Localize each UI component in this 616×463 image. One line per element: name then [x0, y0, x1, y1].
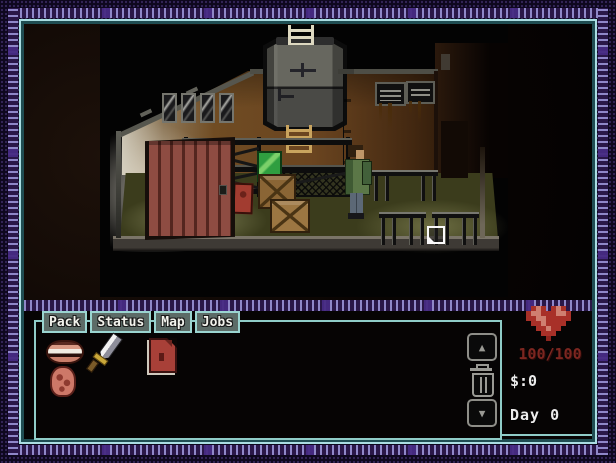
frame-band-left: [8, 8, 18, 455]
character-legs: [350, 193, 363, 214]
bench-top: [372, 170, 438, 176]
bench-leg: [420, 218, 424, 245]
arrow-up-icon: ▲: [479, 342, 486, 353]
bench-leg: [421, 176, 425, 201]
door-knob: [219, 185, 227, 195]
work-bench[interactable]: [372, 170, 438, 201]
character-shoes: [348, 213, 364, 219]
rust-drip: [388, 103, 392, 129]
trash-body: [472, 373, 494, 397]
bench-top: [379, 212, 426, 218]
scroll-up-button[interactable]: ▲: [467, 333, 497, 361]
book-fold: [165, 340, 172, 347]
bench-leg: [409, 218, 413, 245]
stats-panel-border: [500, 434, 592, 436]
tab-map[interactable]: Map: [154, 311, 191, 333]
cursor-fold: [427, 235, 436, 244]
health-value: 100/100: [508, 345, 592, 363]
wooden-crate[interactable]: [270, 199, 310, 233]
window-pane: [200, 93, 215, 123]
game-window: Pack Status Map Jobs ▲ ▼ 100/100 $:0 Day…: [0, 0, 616, 463]
day-counter: Day 0: [510, 406, 560, 424]
bench-leg: [445, 218, 449, 245]
rust-drip: [379, 103, 382, 121]
tab-pack[interactable]: Pack: [42, 311, 87, 333]
book-mark: [159, 353, 164, 361]
bench-leg: [374, 176, 378, 201]
character-backpack: [362, 161, 372, 185]
bench-leg: [392, 218, 396, 245]
bench-leg: [462, 218, 466, 245]
arrow-down-icon: ▼: [479, 408, 486, 419]
panel-tabs: Pack Status Map Jobs: [42, 311, 240, 333]
trash-button[interactable]: [469, 364, 493, 394]
right-wall-edge: [480, 147, 485, 238]
red-canister[interactable]: [232, 183, 253, 215]
frame-band-bottom: [8, 445, 608, 455]
bench-leg: [432, 176, 436, 201]
roof-ladder[interactable]: [288, 25, 314, 45]
bench-top: [432, 212, 479, 218]
panel-divider-band: [24, 300, 592, 311]
window-pane: [181, 93, 196, 123]
work-bench[interactable]: [379, 212, 426, 245]
scroll-down-button[interactable]: ▼: [467, 399, 497, 427]
plank-door[interactable]: [145, 137, 235, 240]
dark-doorway[interactable]: [441, 121, 468, 178]
tank-marking: [278, 89, 281, 101]
left-wall-edge: [116, 131, 121, 238]
inventory-item-dentures[interactable]: [46, 340, 84, 364]
rust-drip: [409, 101, 412, 115]
barred-window[interactable]: [162, 93, 234, 123]
tank-marking: [280, 95, 294, 98]
tab-jobs[interactable]: Jobs: [195, 311, 240, 333]
heart-icon: [526, 306, 531, 311]
window-pane: [219, 93, 234, 123]
survivor-character[interactable]: [343, 145, 370, 219]
bench-leg: [381, 218, 385, 245]
tank-marking: [301, 63, 304, 77]
bench-leg: [385, 176, 389, 201]
water-tank[interactable]: [267, 43, 343, 127]
inventory-item-machete[interactable]: [84, 332, 122, 370]
window-pane: [162, 93, 177, 123]
money-value: $:0: [510, 372, 537, 390]
roof-vent-stub: [441, 54, 450, 70]
frame-band-top: [8, 8, 608, 18]
pipe-bracket: [338, 69, 354, 74]
rust-drip: [418, 101, 421, 123]
bench-leg: [473, 218, 477, 245]
inventory-item-raw-meat[interactable]: [50, 366, 76, 397]
frame-band-right: [598, 8, 608, 455]
tab-status[interactable]: Status: [90, 311, 151, 333]
game-viewport[interactable]: [100, 25, 508, 297]
inventory-item-red-book[interactable]: [149, 338, 177, 373]
trash-lid: [470, 368, 492, 371]
page-cursor-icon: [427, 226, 445, 244]
